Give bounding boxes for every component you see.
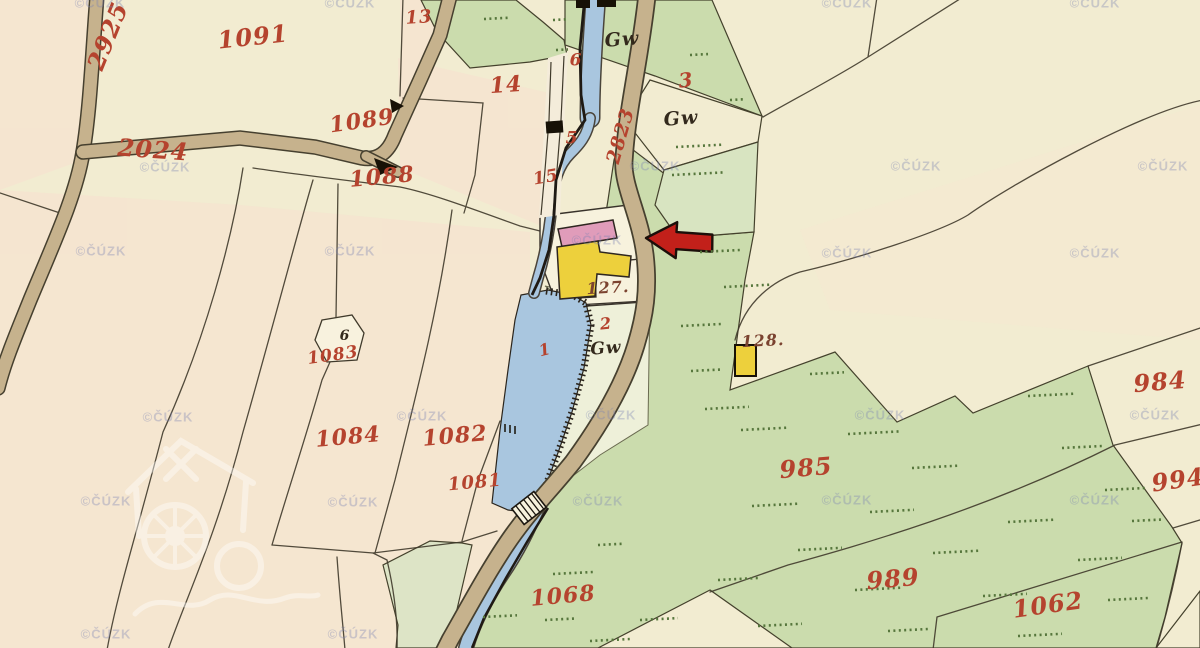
map-canvas [0,0,1200,648]
bridge-icon-top2 [597,0,616,7]
bridge-icon-top [576,0,590,8]
mill-building [546,120,564,133]
building-yellow-128 [735,345,756,376]
cadastral-map[interactable]: 292510911314108910882024155632823127.128… [0,0,1200,648]
